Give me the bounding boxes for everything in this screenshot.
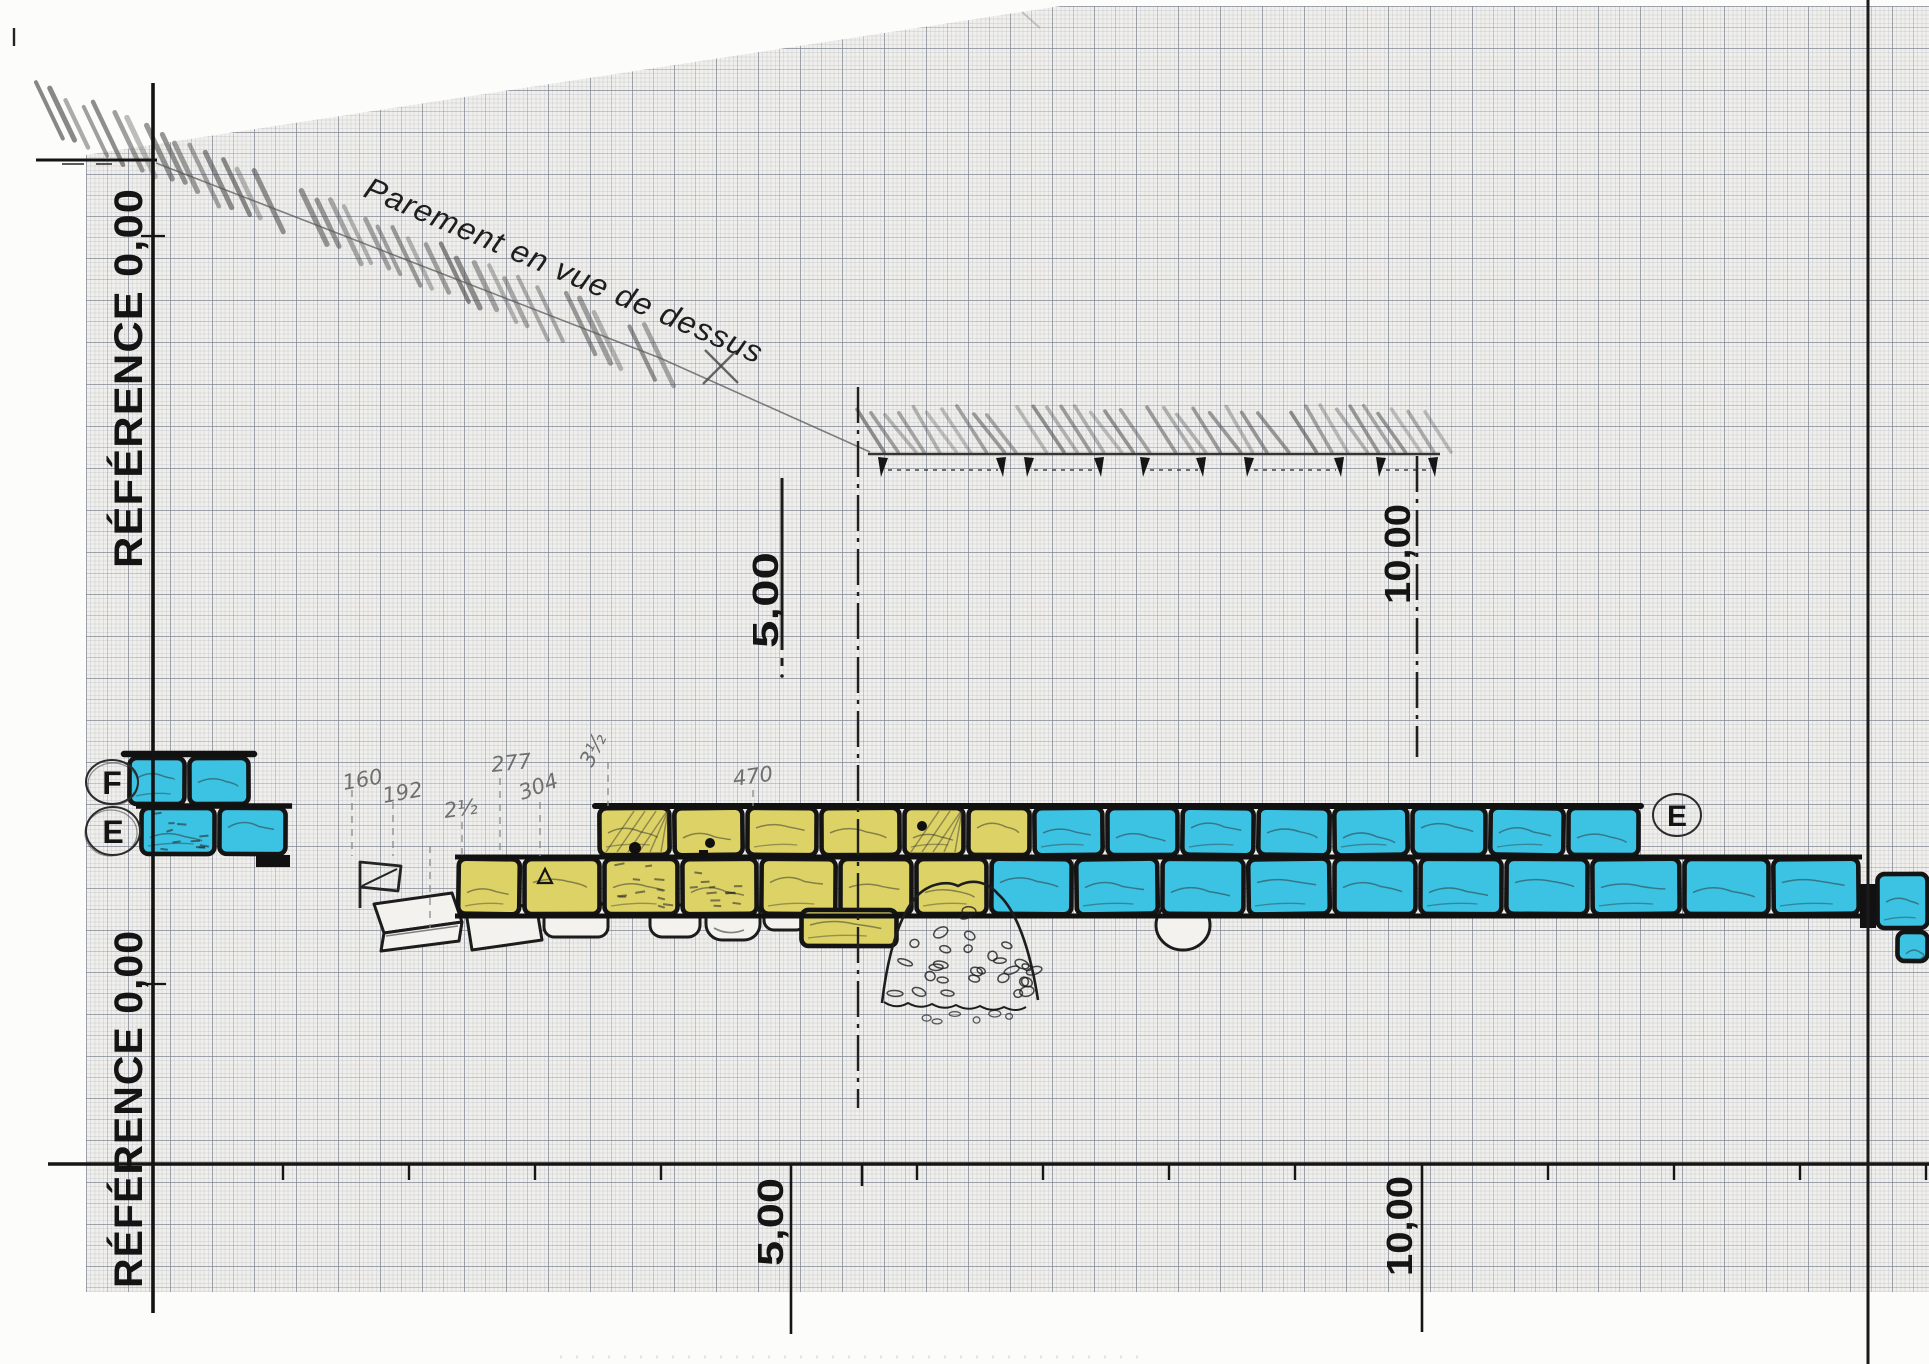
station-label-5m-bottom: 5,00 bbox=[750, 1178, 791, 1266]
station-label-10m-top: 10,00 bbox=[1377, 504, 1418, 604]
row-marker-e-right: E bbox=[1653, 794, 1701, 836]
generated-drawing bbox=[14, 0, 1929, 1364]
edge-tick-marks bbox=[878, 457, 1438, 477]
measurement-304: 304 bbox=[516, 768, 562, 804]
measurement-277: 277 bbox=[490, 749, 533, 777]
terrain-hatching-horizontal bbox=[857, 405, 1451, 452]
station-label-10m-bottom: 10,00 bbox=[1379, 1176, 1420, 1276]
measurement-160: 160 bbox=[341, 764, 385, 795]
measurement-192: 192 bbox=[381, 777, 425, 808]
measurement-2half: 2½ bbox=[442, 794, 479, 822]
ink-drawing: RÉFÉRENCE 0,00 RÉFÉRENCE 0,00 Parement e… bbox=[0, 0, 1929, 1364]
construction-lines bbox=[780, 387, 1417, 1108]
measurement-470: 470 bbox=[731, 762, 774, 791]
ink-labels: RÉFÉRENCE 0,00 RÉFÉRENCE 0,00 Parement e… bbox=[85, 170, 1701, 1288]
marker-letter: E bbox=[102, 814, 123, 850]
reference-label-top: RÉFÉRENCE 0,00 bbox=[106, 188, 151, 568]
row-marker-e-left: E bbox=[85, 807, 140, 856]
station-label-5m-top: 5,00 bbox=[745, 552, 786, 648]
marker-letter: F bbox=[102, 765, 122, 801]
scanned-drawing-page: RÉFÉRENCE 0,00 RÉFÉRENCE 0,00 Parement e… bbox=[0, 0, 1929, 1364]
measurement-3half: 3½ bbox=[575, 729, 611, 770]
reference-label-bottom: RÉFÉRENCE 0,00 bbox=[106, 930, 151, 1288]
terrain-edge-lines bbox=[156, 163, 1440, 454]
marker-letter: E bbox=[1667, 800, 1687, 833]
baseline-axis bbox=[14, 0, 1929, 1364]
